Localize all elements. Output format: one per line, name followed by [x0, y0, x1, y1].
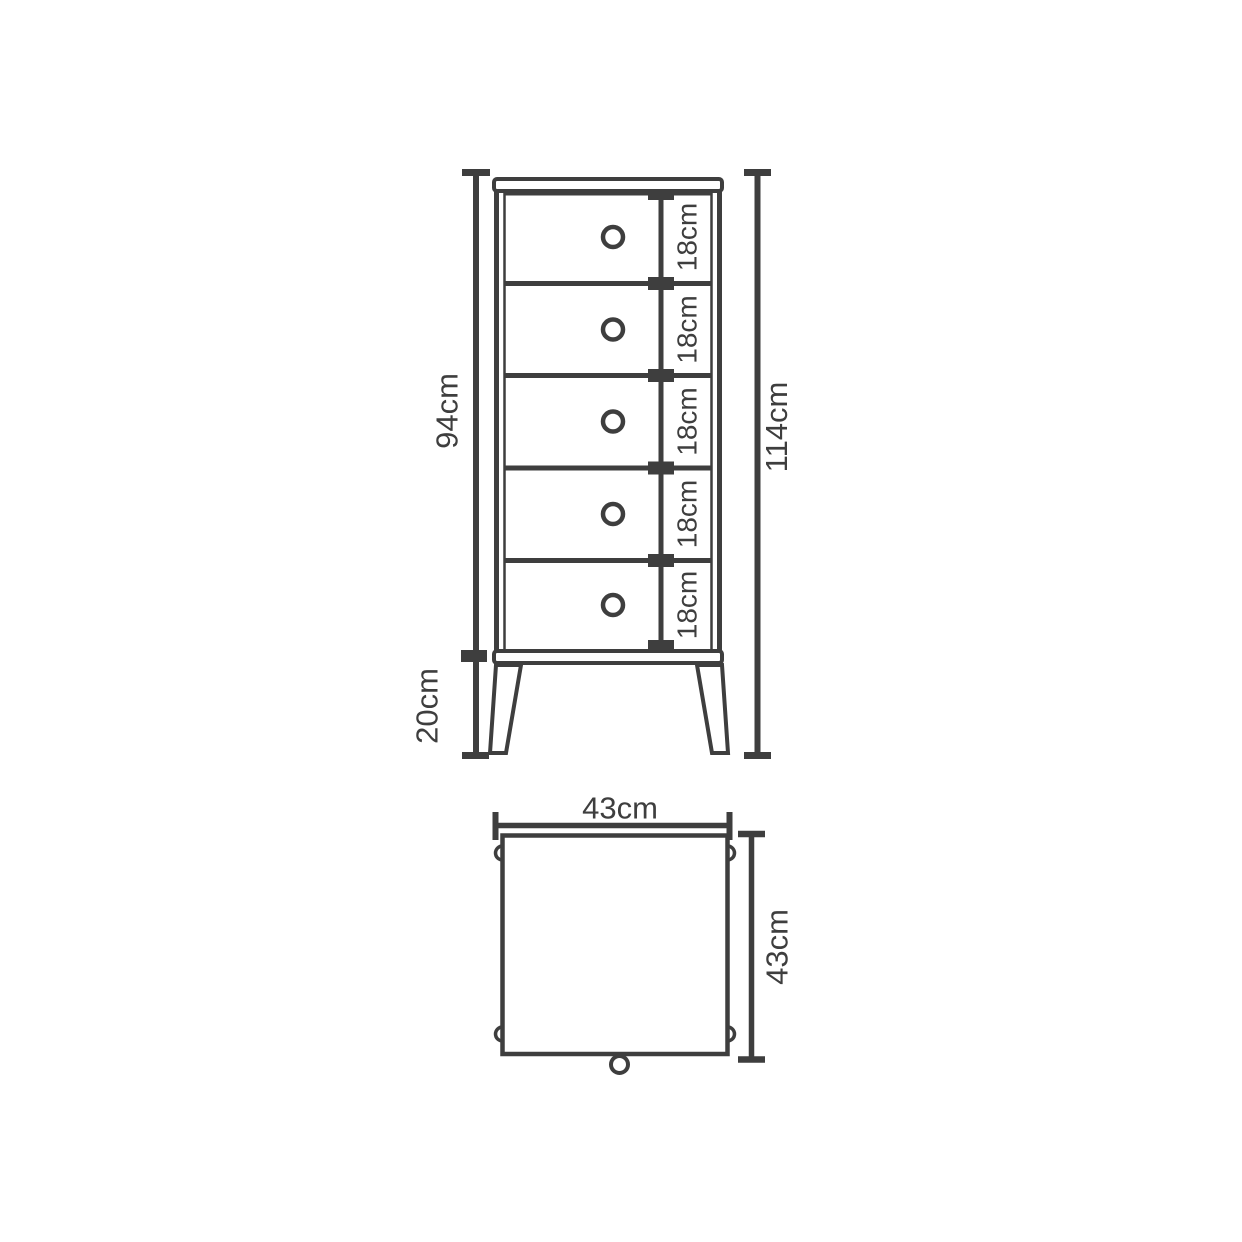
drawer-knob-icon [603, 320, 623, 340]
drawer-height-label: 18cm [672, 480, 703, 548]
dimension-tick [648, 189, 674, 200]
dimension-width: 43cm [495, 791, 731, 841]
drawer-height-label: 18cm [672, 571, 703, 639]
drawer-height-label: 18cm [672, 295, 703, 363]
drawer-row: 18cm [603, 203, 703, 271]
total-height-label: 114cm [759, 382, 794, 473]
dimension-tick [648, 640, 674, 653]
diagram-svg: 94cm 20cm 114cm [0, 0, 1242, 1242]
dimension-body-height: 94cm [430, 172, 491, 662]
dimension-tick [648, 369, 674, 382]
dimension-leg-height: 20cm [410, 656, 490, 756]
dimension-depth: 43cm [738, 834, 795, 1061]
dimension-total-height: 114cm [744, 172, 794, 756]
depth-label: 43cm [760, 909, 795, 985]
drawer-knob-icon [603, 595, 623, 615]
dimension-tick [648, 462, 674, 475]
drawer-knob-icon [603, 412, 623, 432]
body-height-label: 94cm [430, 373, 465, 449]
drawer-row: 18cm [603, 571, 703, 639]
drawer-row: 18cm [603, 295, 703, 363]
drawer-row: 18cm [603, 387, 703, 455]
drawer-knob-icon [603, 227, 623, 247]
furniture-dimension-diagram: 94cm 20cm 114cm [0, 0, 1242, 1242]
right-leg [697, 665, 728, 753]
drawer-height-label: 18cm [672, 203, 703, 271]
front-view: 94cm 20cm 114cm [410, 172, 795, 756]
dimension-drawer-heights [648, 189, 674, 653]
top-view: 43cm 43cm [495, 791, 795, 1074]
bottom-board [494, 651, 722, 663]
top-board [494, 179, 722, 191]
cabinet-top-outline [503, 836, 728, 1055]
dimension-tick [648, 277, 674, 290]
left-leg [490, 665, 521, 753]
drawer-knob-top-icon [611, 1056, 628, 1073]
leg-height-label: 20cm [410, 668, 445, 744]
drawer-row: 18cm [603, 480, 703, 548]
drawer-height-label: 18cm [672, 387, 703, 455]
drawer-knob-icon [603, 504, 623, 524]
dimension-tick [648, 554, 674, 567]
width-label: 43cm [582, 791, 658, 826]
